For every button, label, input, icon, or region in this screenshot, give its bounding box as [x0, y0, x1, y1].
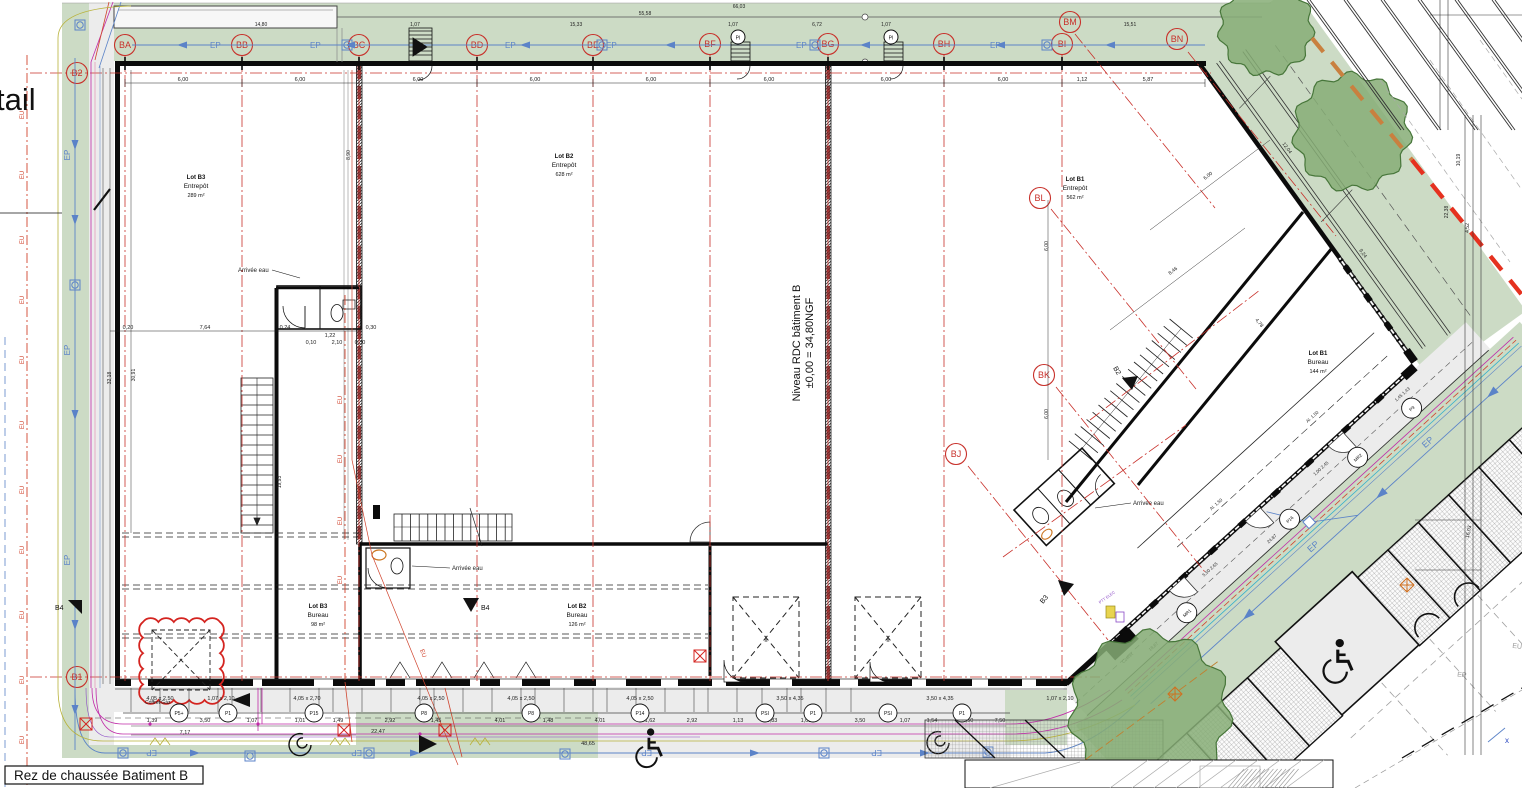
svg-text:EU: EU: [338, 576, 344, 584]
svg-text:562 m²: 562 m²: [1066, 195, 1083, 201]
svg-text:6,00: 6,00: [646, 77, 657, 83]
svg-text:P15: P15: [310, 711, 319, 717]
svg-text:1,07: 1,07: [728, 22, 738, 28]
svg-text:Entrepôt: Entrepôt: [1063, 185, 1088, 192]
svg-text:10,19: 10,19: [1456, 154, 1462, 167]
svg-text:4,52: 4,52: [1465, 223, 1471, 233]
svg-text:BN: BN: [1171, 34, 1184, 44]
svg-text:BA: BA: [119, 40, 131, 50]
svg-text:0,30: 0,30: [355, 340, 366, 346]
svg-text:3,50 x 4,35: 3,50 x 4,35: [776, 696, 803, 702]
svg-text:EP: EP: [796, 41, 807, 50]
svg-text:P5+: P5+: [174, 711, 183, 717]
svg-text:x: x: [887, 638, 890, 644]
svg-text:0,20: 0,20: [123, 325, 134, 331]
svg-text:4,01: 4,01: [595, 718, 606, 724]
svg-text:P8: P8: [421, 711, 427, 717]
svg-text:48,65: 48,65: [581, 741, 595, 747]
svg-text:PSI: PSI: [761, 711, 769, 717]
svg-text:6,00: 6,00: [295, 77, 306, 83]
svg-text:628 m²: 628 m²: [555, 172, 572, 178]
svg-text:3,50: 3,50: [200, 718, 211, 724]
svg-text:EU: EU: [20, 736, 26, 744]
svg-text:P1: P1: [959, 711, 965, 717]
svg-text:P1: P1: [810, 711, 816, 717]
svg-text:EP: EP: [310, 41, 321, 50]
svg-text:EU: EU: [20, 421, 26, 429]
svg-text:Lot B1: Lot B1: [1309, 351, 1328, 357]
svg-text:EU: EU: [20, 296, 26, 304]
svg-text:8,90: 8,90: [346, 150, 352, 160]
svg-text:BM: BM: [1063, 17, 1077, 27]
svg-text:EP: EP: [146, 748, 157, 757]
svg-text:B4: B4: [481, 605, 490, 612]
svg-text:3,50 x 4,35: 3,50 x 4,35: [926, 696, 953, 702]
svg-text:B1: B1: [71, 672, 82, 682]
svg-text:EU: EU: [20, 171, 26, 179]
svg-text:1,49: 1,49: [333, 718, 344, 724]
svg-text:1,07: 1,07: [881, 22, 891, 28]
svg-text:PSI: PSI: [884, 711, 892, 717]
svg-text:126 m²: 126 m²: [568, 622, 585, 628]
svg-text:1,07: 1,07: [900, 718, 911, 724]
svg-text:BI: BI: [1058, 39, 1067, 49]
svg-text:32,18: 32,18: [107, 372, 113, 385]
svg-text:Rez de chaussée Batiment B: Rez de chaussée Batiment B: [14, 768, 188, 783]
svg-text:Lot B2: Lot B2: [555, 154, 574, 160]
svg-text:EP: EP: [606, 41, 617, 50]
svg-text:6,00: 6,00: [998, 77, 1009, 83]
svg-text:22,47: 22,47: [371, 729, 385, 735]
svg-text:EP: EP: [63, 150, 72, 161]
svg-text:Entrepôt: Entrepôt: [184, 183, 209, 190]
svg-text:BG: BG: [821, 39, 834, 49]
svg-text:144 m²: 144 m²: [1309, 369, 1326, 375]
svg-text:6,00: 6,00: [764, 77, 775, 83]
svg-text:66,03: 66,03: [733, 4, 746, 10]
svg-text:1,45: 1,45: [431, 718, 442, 724]
svg-text:Arrivée eau: Arrivée eau: [452, 566, 483, 572]
svg-text:Lot B1: Lot B1: [1066, 177, 1085, 183]
svg-text:EU: EU: [338, 517, 344, 525]
svg-text:19,93: 19,93: [277, 476, 283, 489]
svg-text:Arrivée eau: Arrivée eau: [238, 268, 269, 274]
svg-text:P14: P14: [636, 711, 645, 717]
svg-text:6,00: 6,00: [1044, 409, 1050, 419]
svg-text:Bureau: Bureau: [308, 612, 329, 619]
svg-text:7,17: 7,17: [180, 730, 191, 736]
svg-text:EU: EU: [338, 455, 344, 463]
svg-text:BL: BL: [1034, 193, 1045, 203]
svg-text:0,24: 0,24: [280, 325, 291, 331]
svg-text:0,10: 0,10: [306, 340, 317, 346]
svg-text:1,22: 1,22: [325, 333, 336, 339]
svg-text:98 m²: 98 m²: [311, 622, 325, 628]
svg-text:1,12: 1,12: [1077, 77, 1088, 83]
svg-text:22,38: 22,38: [1444, 206, 1450, 219]
svg-text:EP: EP: [1457, 671, 1467, 679]
svg-text:Niveau RDC bâtiment B: Niveau RDC bâtiment B: [791, 285, 803, 402]
svg-text:4,05 x 2,70: 4,05 x 2,70: [293, 696, 320, 702]
svg-text:EP: EP: [63, 345, 72, 356]
svg-text:289 m²: 289 m²: [187, 193, 204, 199]
svg-text:15,51: 15,51: [1124, 22, 1137, 28]
svg-text:P8: P8: [528, 711, 534, 717]
svg-text:B2: B2: [71, 68, 82, 78]
svg-text:Bureau: Bureau: [567, 612, 588, 619]
svg-text:EP: EP: [505, 41, 516, 50]
svg-text:30,91: 30,91: [131, 369, 137, 382]
svg-text:Lot B3: Lot B3: [187, 175, 206, 181]
svg-text:EU: EU: [338, 396, 344, 404]
svg-text:EP: EP: [351, 748, 362, 757]
svg-text:P1: P1: [225, 711, 231, 717]
svg-text:6,00: 6,00: [1044, 241, 1050, 251]
svg-text:EP: EP: [210, 41, 221, 50]
svg-text:x: x: [1505, 736, 1509, 745]
svg-text:Entrepôt: Entrepôt: [552, 162, 577, 169]
svg-text:Lot B2: Lot B2: [568, 604, 587, 610]
svg-text:BH: BH: [938, 39, 951, 49]
svg-text:0,30: 0,30: [366, 325, 377, 331]
svg-text:1,07 x 2,10: 1,07 x 2,10: [1046, 696, 1073, 702]
svg-text:1,48: 1,48: [543, 718, 554, 724]
svg-text:3,50: 3,50: [855, 718, 866, 724]
svg-text:EP: EP: [63, 555, 72, 566]
svg-text:EU: EU: [1512, 643, 1522, 651]
svg-text:7,64: 7,64: [200, 325, 211, 331]
svg-text:BJ: BJ: [951, 449, 962, 459]
svg-text:Lot B3: Lot B3: [309, 604, 328, 610]
svg-text:PI: PI: [736, 36, 741, 42]
svg-text:15,33: 15,33: [570, 22, 583, 28]
svg-text:4,05 x 2,50: 4,05 x 2,50: [507, 696, 534, 702]
svg-text:EU: EU: [20, 356, 26, 364]
svg-text:tail: tail: [0, 82, 36, 117]
svg-text:EP: EP: [990, 41, 1001, 50]
svg-text:x: x: [765, 638, 768, 644]
svg-text:1,01: 1,01: [295, 718, 306, 724]
svg-text:EU: EU: [20, 676, 26, 684]
svg-text:6,72: 6,72: [812, 22, 822, 28]
svg-text:1,39: 1,39: [147, 718, 158, 724]
svg-text:1,07: 1,07: [247, 718, 258, 724]
svg-text:4,01: 4,01: [495, 718, 506, 724]
svg-text:55,58: 55,58: [639, 11, 652, 17]
svg-text:6,00: 6,00: [881, 77, 892, 83]
svg-text:B4: B4: [55, 605, 64, 612]
svg-text:EP: EP: [871, 748, 882, 757]
svg-text:EU: EU: [20, 546, 26, 554]
svg-text:6,00: 6,00: [178, 77, 189, 83]
svg-text:6,00: 6,00: [530, 77, 541, 83]
svg-text:Bureau: Bureau: [1308, 359, 1329, 366]
svg-text:2,92: 2,92: [687, 718, 698, 724]
svg-text:BF: BF: [704, 39, 716, 49]
svg-text:1,07: 1,07: [410, 22, 420, 28]
svg-text:4,05 x 2,50: 4,05 x 2,50: [417, 696, 444, 702]
svg-text:1,13: 1,13: [733, 718, 744, 724]
svg-text:2,10: 2,10: [332, 340, 343, 346]
svg-text:5,87: 5,87: [1143, 77, 1154, 83]
svg-text:EU: EU: [20, 236, 26, 244]
svg-text:4,05 x 2,50: 4,05 x 2,50: [626, 696, 653, 702]
svg-text:±0,00 = 34,80NGF: ±0,00 = 34,80NGF: [804, 297, 816, 388]
svg-text:4,05 x 2,50: 4,05 x 2,50: [146, 696, 173, 702]
svg-text:PI: PI: [889, 36, 894, 42]
svg-text:EU: EU: [20, 486, 26, 494]
svg-text:EU: EU: [20, 611, 26, 619]
svg-text:14,80: 14,80: [255, 22, 268, 28]
svg-text:1,07 x 2,10: 1,07 x 2,10: [207, 696, 234, 702]
svg-text:2,92: 2,92: [385, 718, 396, 724]
